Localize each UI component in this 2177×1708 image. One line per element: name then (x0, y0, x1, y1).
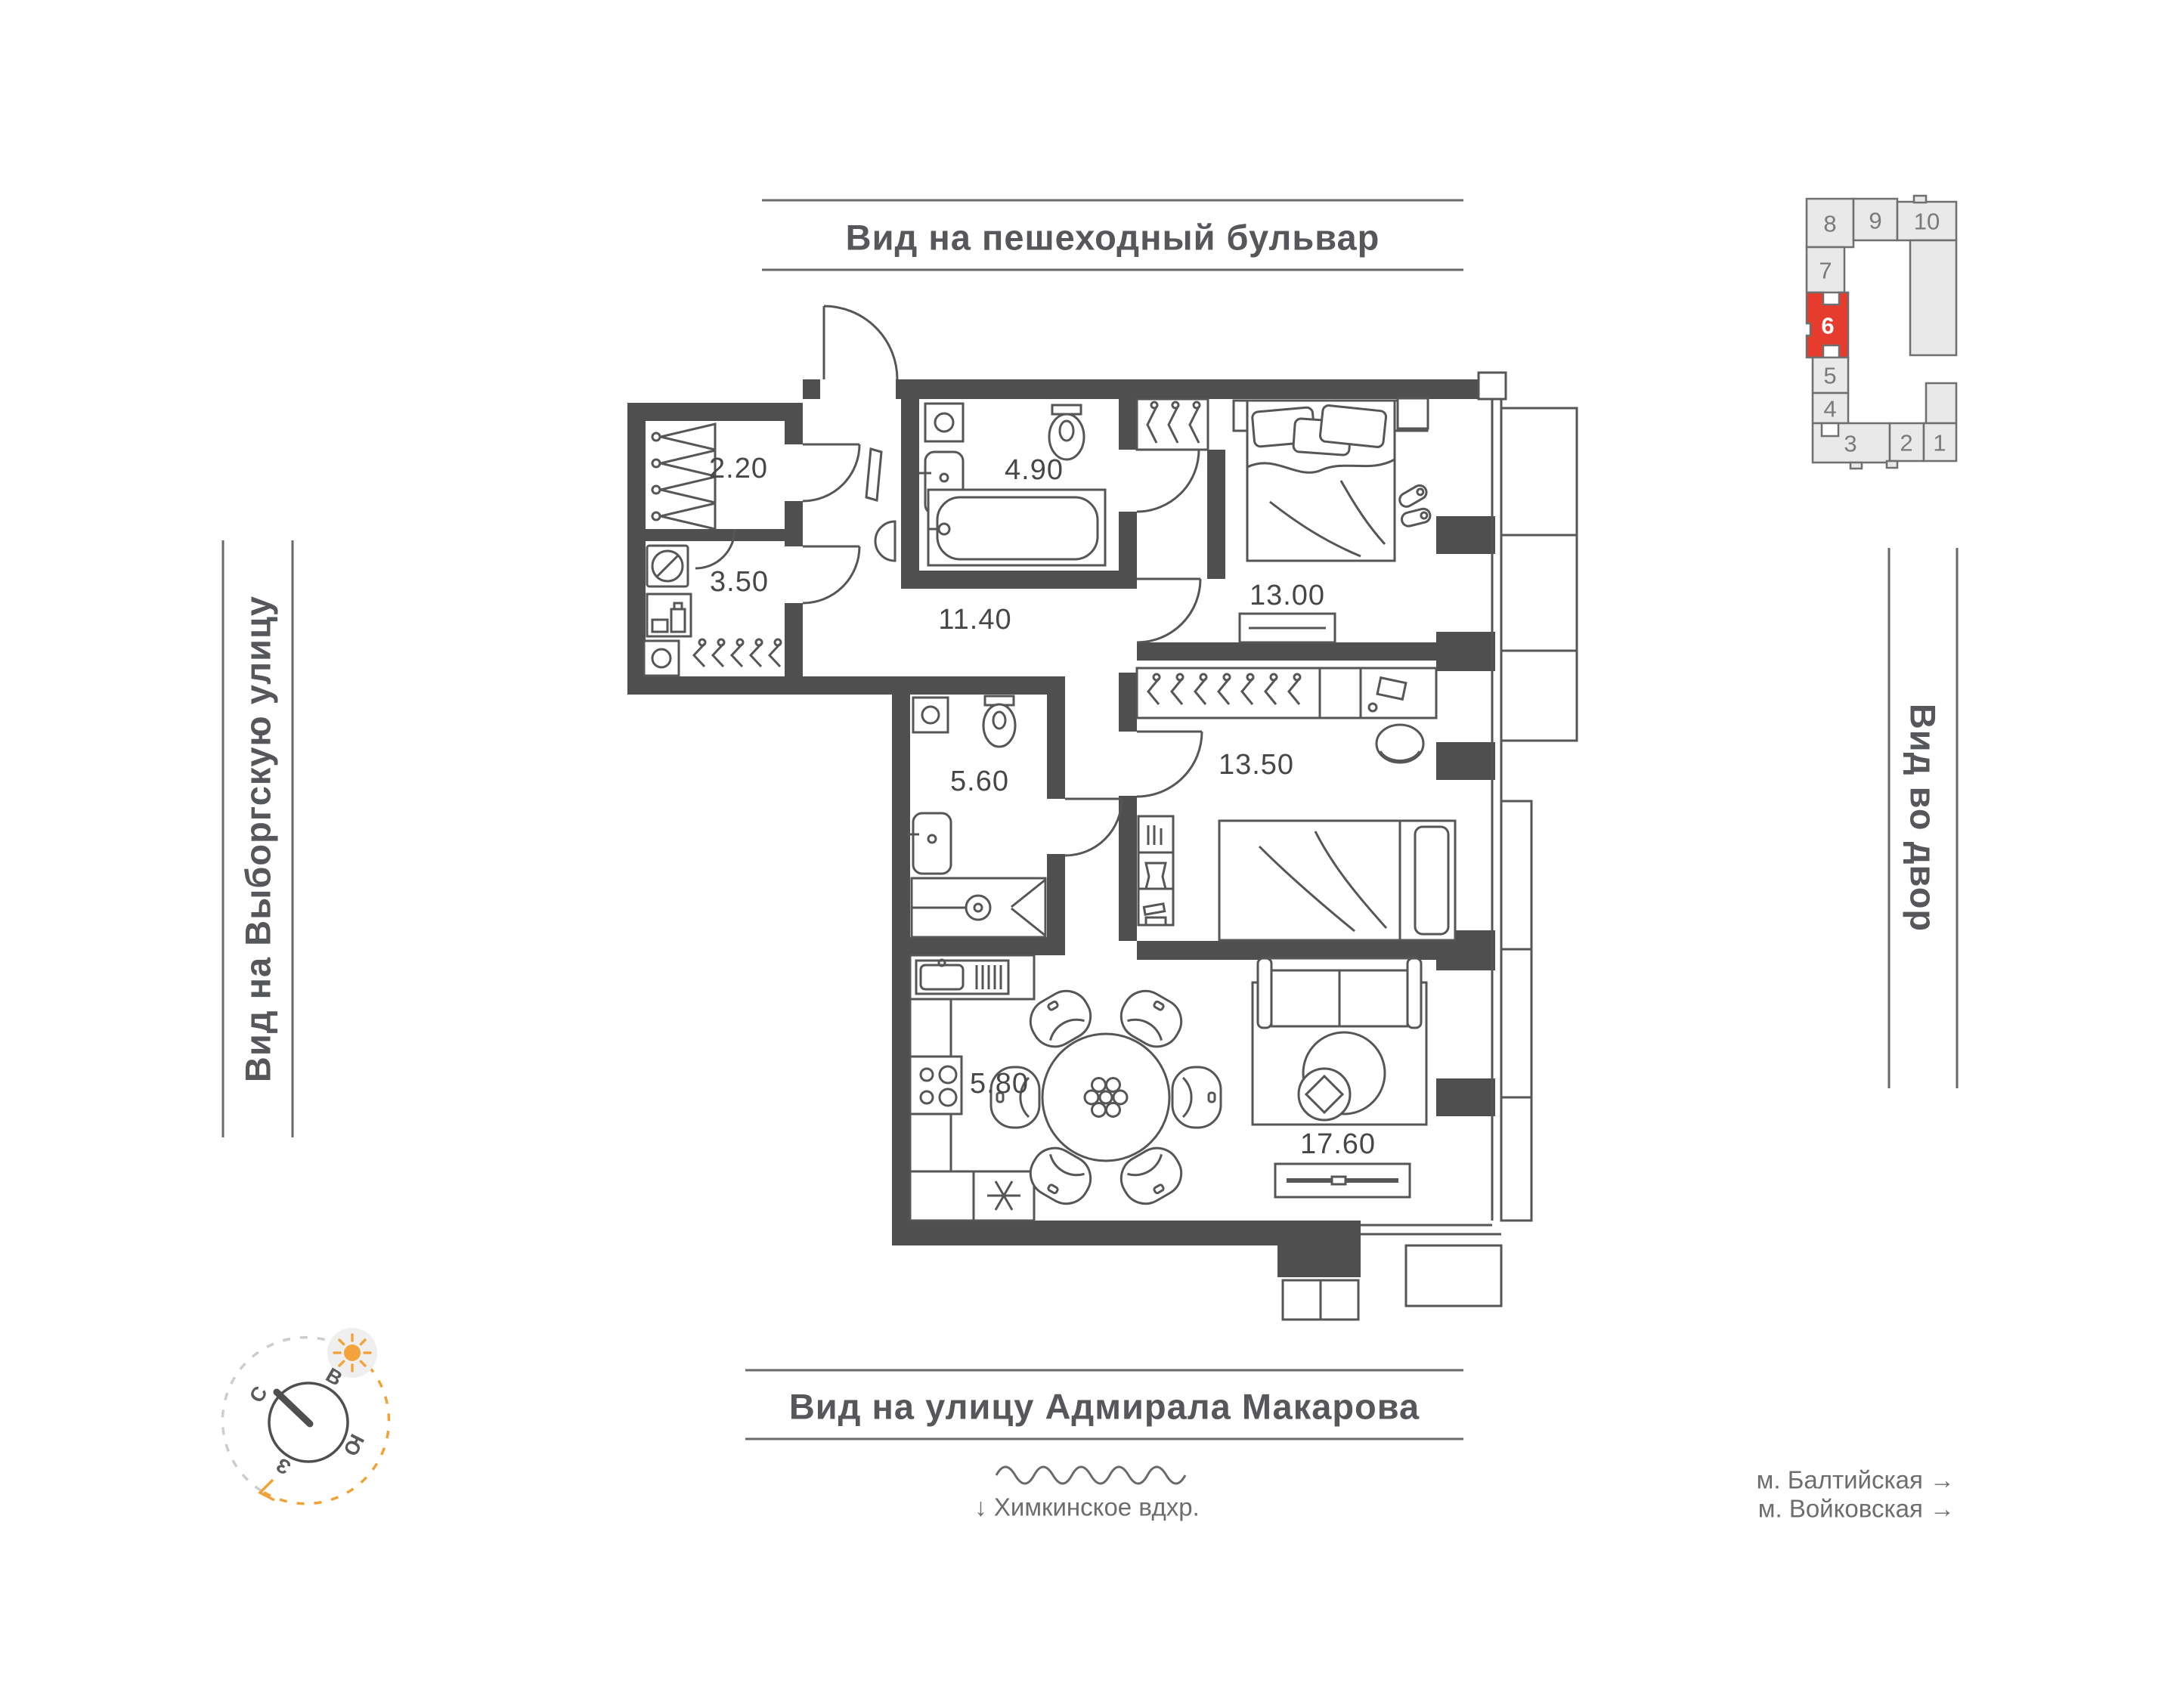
sofa-icon (1258, 958, 1421, 1028)
compass-arrow-icon (260, 1480, 274, 1500)
bed-icon (1219, 821, 1455, 940)
view-title-right-label: Вид во двор (1903, 704, 1943, 932)
unit-2-tab (1887, 461, 1897, 468)
room-area-living: 17.60 (1300, 1128, 1376, 1160)
facade-pier (1436, 632, 1495, 671)
right-wing-lower (1926, 383, 1956, 423)
view-title-right: Вид во двор (1889, 548, 1957, 1088)
hanger-icon (652, 424, 715, 529)
wall-hooks-icon (694, 639, 781, 667)
room-area-bedroom-1: 13.00 (1250, 580, 1325, 611)
open-wardrobe-icon (1137, 668, 1364, 718)
building-key-plan: 8 9 10 7 6 5 4 3 2 1 (1807, 196, 1956, 469)
compass: С В Ю З (222, 1328, 389, 1504)
shelving-icon (1138, 816, 1173, 925)
right-wing (1910, 240, 1956, 355)
balcony-slab (1501, 408, 1577, 741)
room-area-bedroom-2: 13.50 (1219, 749, 1294, 781)
room-area-kitchen: 5.80 (970, 1068, 1029, 1100)
view-title-top: Вид на пешеходный бульвар (762, 200, 1463, 270)
unit-6-label: 6 (1821, 313, 1834, 339)
unit-10-label: 10 (1914, 209, 1940, 235)
vent-shaft-icon (913, 698, 948, 732)
sun-icon (334, 1335, 370, 1371)
fridge-icon (910, 1171, 1034, 1221)
metro-2-label: м. Войковская → (1758, 1495, 1955, 1523)
dresser-icon (1240, 614, 1335, 642)
view-title-bottom: Вид на улицу Адмирала Макарова (745, 1370, 1463, 1439)
counter (910, 1114, 951, 1171)
door-wc (1065, 799, 1122, 856)
view-title-left-label: Вид на Выборгскую улицу (238, 596, 278, 1082)
view-title-bottom-label: Вид на улицу Адмирала Макарова (789, 1387, 1420, 1427)
wc-fixtures (907, 696, 1045, 937)
door-bathroom (1137, 450, 1199, 512)
facade-pier (1277, 1245, 1361, 1277)
chair-icon (1376, 725, 1423, 763)
shower-icon (912, 878, 1045, 937)
utility-box-icon (644, 641, 679, 676)
facade-pier (1436, 516, 1495, 554)
unit-10-tab (1914, 196, 1926, 203)
unit-9-label: 9 (1869, 208, 1881, 234)
door-bedroom-2 (1137, 732, 1202, 797)
kitchen-fixtures (910, 955, 1221, 1221)
room-area-hallway: 11.40 (938, 604, 1011, 636)
glazing-corner (1479, 373, 1506, 399)
unit-3-label: 3 (1844, 431, 1856, 457)
living-room-fixtures (1253, 958, 1426, 1197)
water-wave-icon (996, 1467, 1185, 1484)
unit-2-label: 2 (1900, 430, 1912, 456)
door-bedroom-1 (1137, 579, 1200, 642)
wardrobe-room-fixtures (652, 424, 715, 529)
bedroom-2-fixtures (1137, 668, 1455, 940)
door-wardrobe-room (803, 444, 859, 501)
unit-3-tab (1850, 463, 1862, 469)
landmarks: ↓ Химкинское вдхр. м. Балтийская → м. Во… (974, 1466, 1955, 1523)
unit-5-label: 5 (1823, 363, 1836, 389)
toilet-icon (1049, 405, 1084, 459)
sconce-icon (875, 521, 895, 561)
entry-closet-icon (1137, 399, 1208, 450)
room-area-wc: 5.60 (950, 766, 1009, 797)
view-title-left: Вид на Выборгскую улицу (223, 540, 293, 1137)
unit-4-label: 4 (1823, 396, 1836, 422)
unit-8-label: 8 (1823, 211, 1836, 237)
vent-shaft-icon (925, 404, 963, 441)
coffee-table-icon (1299, 1069, 1350, 1120)
loggia-outline (1406, 1245, 1501, 1306)
counter (910, 999, 951, 1057)
floorplan-canvas: Вид на пешеходный бульвар Вид на улицу А… (0, 0, 2177, 1708)
bathtub-icon (928, 490, 1105, 565)
room-area-wardrobe: 2.20 (709, 453, 768, 484)
balcony-slab (1501, 801, 1531, 1221)
door-storage-room (803, 546, 859, 603)
stove-icon (910, 1057, 962, 1114)
floorplan-page: Вид на пешеходный бульвар Вид на улицу А… (0, 0, 2177, 1708)
compass-north-label: С (245, 1382, 272, 1406)
unit-3-notch (1822, 423, 1838, 436)
bed-icon (1247, 401, 1395, 561)
detergent-shelf-icon (647, 594, 691, 636)
unit-7-label: 7 (1819, 258, 1832, 284)
room-area-bathroom: 4.90 (1005, 454, 1064, 486)
tv-console-icon (1275, 1164, 1410, 1197)
nightstand-icon (1398, 398, 1428, 429)
hallway-fixtures (866, 449, 895, 561)
unit-1-label: 1 (1933, 430, 1946, 456)
mirror-icon (866, 449, 881, 500)
slippers-icon (1397, 483, 1431, 528)
toilet-icon (983, 696, 1015, 747)
room-area-storage: 3.50 (710, 566, 769, 598)
entrance-door (824, 306, 897, 379)
metro-1-label: м. Балтийская → (1757, 1466, 1955, 1494)
facade-pier (1436, 742, 1495, 780)
reservoir-label: ↓ Химкинское вдхр. (974, 1493, 1200, 1521)
sink-icon (907, 813, 951, 874)
washing-machine-icon (647, 546, 688, 586)
facade-pier (1436, 1078, 1495, 1116)
desk-icon (1361, 668, 1436, 718)
view-title-top-label: Вид на пешеходный бульвар (846, 218, 1380, 258)
kitchen-sink-icon (910, 955, 1034, 999)
